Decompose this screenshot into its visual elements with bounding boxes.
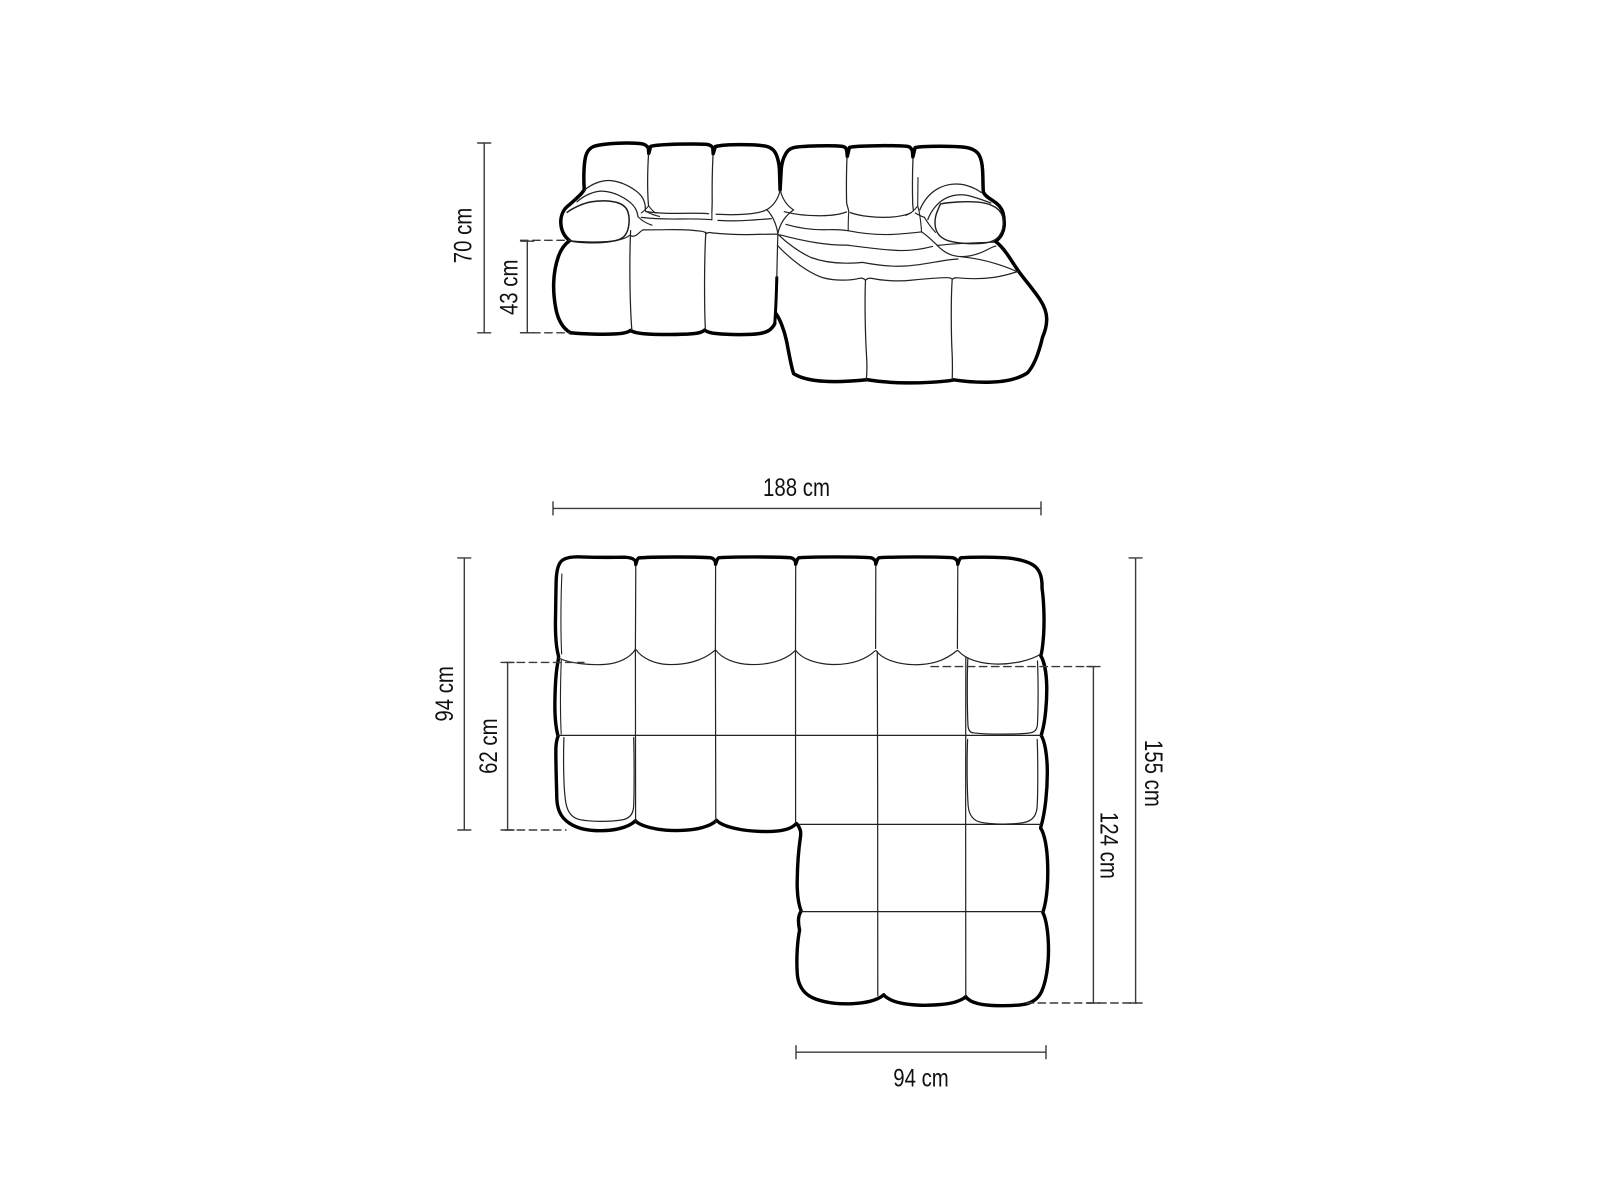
svg-text:62 cm: 62 cm — [475, 718, 503, 774]
svg-text:43 cm: 43 cm — [496, 260, 524, 316]
svg-text:124 cm: 124 cm — [1094, 812, 1122, 879]
svg-text:155 cm: 155 cm — [1139, 740, 1167, 807]
svg-text:70 cm: 70 cm — [450, 208, 478, 264]
svg-text:188 cm: 188 cm — [763, 474, 830, 502]
svg-text:94 cm: 94 cm — [431, 666, 459, 722]
svg-text:94 cm: 94 cm — [893, 1064, 949, 1092]
